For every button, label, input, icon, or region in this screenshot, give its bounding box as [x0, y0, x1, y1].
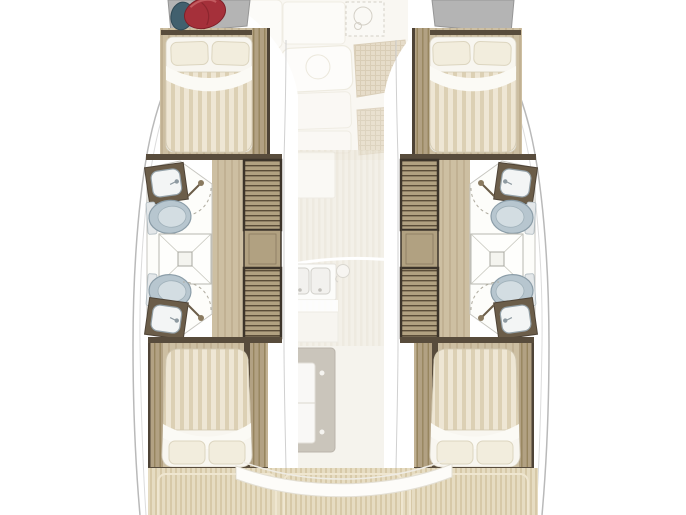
hull-port	[133, 0, 298, 515]
saloon-console	[283, 2, 345, 44]
floorplan-canvas	[0, 0, 686, 515]
stern-deck	[148, 460, 538, 515]
liferaft-locker	[346, 2, 384, 36]
hull-starboard	[384, 0, 549, 515]
catamaran-floorplan	[0, 0, 686, 515]
